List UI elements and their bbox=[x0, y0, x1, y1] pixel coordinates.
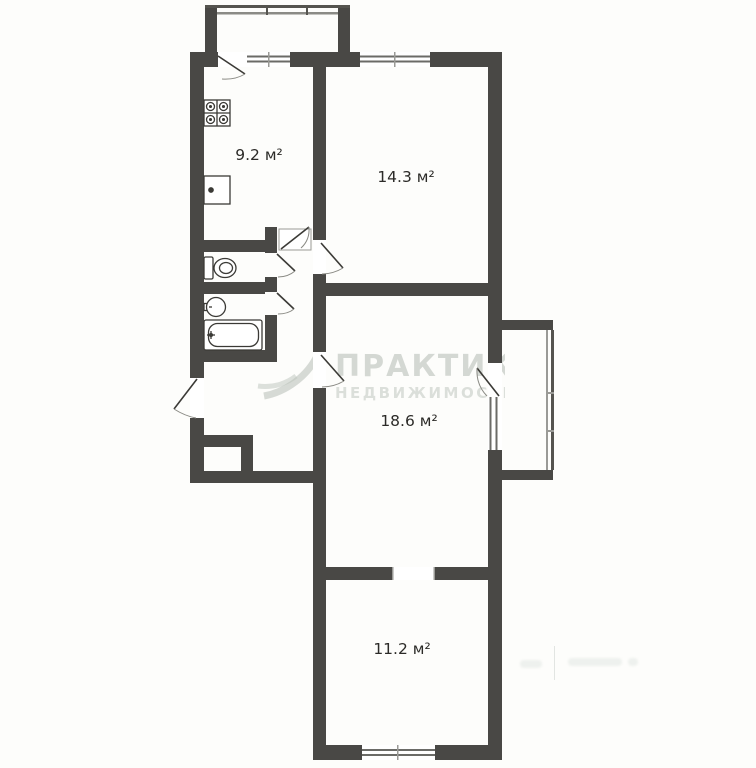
kitchen-door-swing bbox=[279, 227, 311, 250]
doorway-living-bedroom2 bbox=[392, 567, 435, 580]
wall-kitchen-divider bbox=[313, 67, 326, 240]
wall-balcony-top-left bbox=[205, 5, 217, 52]
stove-icon bbox=[204, 100, 230, 126]
wall-balcony-right-top bbox=[502, 320, 553, 330]
floor-plan-canvas: ПРАКТИКА НЕДВИЖИМОСТИ bbox=[0, 0, 756, 768]
room-area-label-living: 18.6 м² bbox=[380, 412, 437, 430]
wall-corridor-left-upper bbox=[265, 227, 277, 253]
wall-kitchen-bottom bbox=[190, 240, 265, 252]
room-area-label-bedroom2: 11.2 м² bbox=[373, 640, 430, 658]
doorway-jamb bbox=[392, 567, 394, 580]
room-area-label-bedroom: 14.3 м² bbox=[377, 168, 434, 186]
room-labels-layer: 9.2 м² 14.3 м² 18.6 м² 11.2 м² bbox=[235, 146, 437, 658]
window-divider bbox=[306, 5, 308, 15]
window-icon bbox=[496, 397, 498, 450]
room-area-label-kitchen: 9.2 м² bbox=[235, 146, 282, 164]
window-icon bbox=[490, 397, 492, 450]
window-icon bbox=[205, 5, 350, 8]
wall-balcony-top-right bbox=[338, 5, 350, 52]
window-icon bbox=[217, 12, 338, 15]
doorway bbox=[392, 567, 435, 580]
kitchen-sink-icon bbox=[204, 176, 230, 204]
window-kitchen bbox=[247, 52, 290, 67]
window-bedroom2 bbox=[362, 745, 435, 760]
wall-corridor-left-mid bbox=[265, 277, 277, 292]
wall-corridor-right bbox=[313, 274, 326, 352]
toilet-icon bbox=[204, 257, 236, 279]
balcony-right-glazing bbox=[546, 330, 554, 470]
balcony-top-glazing bbox=[205, 5, 350, 15]
window-bedroom bbox=[360, 52, 430, 67]
window-divider bbox=[266, 5, 268, 15]
washbasin-icon bbox=[204, 298, 226, 317]
window-tick bbox=[397, 745, 399, 760]
wall-rooms-left bbox=[313, 388, 326, 745]
wall-between-bedroom-living bbox=[326, 283, 488, 296]
bedroom-doorway bbox=[313, 240, 326, 274]
window-icon bbox=[551, 330, 554, 470]
window-tick bbox=[394, 52, 396, 67]
window-tick bbox=[546, 430, 554, 432]
window-tick bbox=[546, 392, 554, 394]
wall-hall-bottom bbox=[190, 471, 326, 483]
wall-balcony-right-bottom bbox=[502, 470, 553, 480]
bathroom-door-swing bbox=[277, 293, 294, 314]
bathtub-icon bbox=[204, 320, 262, 350]
wall-left bbox=[190, 52, 204, 483]
wc-door-swing bbox=[277, 254, 295, 277]
wall-bath-bottom bbox=[190, 350, 277, 362]
entrance-doorway bbox=[190, 378, 204, 418]
window-icon bbox=[546, 330, 548, 470]
doorway-jamb bbox=[434, 567, 436, 580]
wall-wc-bath-divider bbox=[190, 282, 265, 294]
window-living-room bbox=[488, 397, 502, 450]
fixtures-layer bbox=[204, 100, 262, 350]
floor-plan-drawing: 9.2 м² 14.3 м² 18.6 м² 11.2 м² bbox=[0, 0, 756, 768]
window-tick bbox=[268, 52, 270, 67]
